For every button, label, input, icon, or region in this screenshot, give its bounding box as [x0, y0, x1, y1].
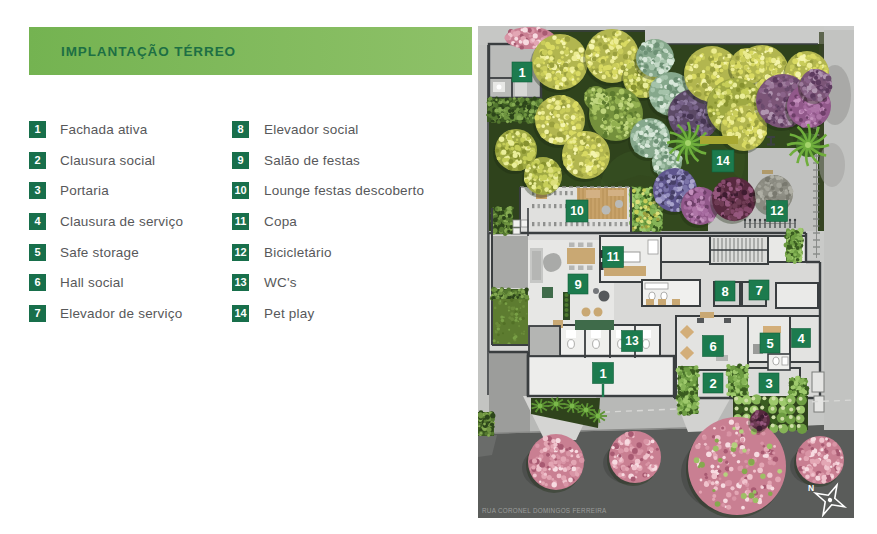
svg-text:N: N: [808, 483, 814, 493]
svg-text:1: 1: [518, 65, 525, 80]
svg-text:7: 7: [755, 283, 762, 298]
svg-text:1: 1: [599, 366, 606, 381]
svg-text:5: 5: [766, 336, 773, 351]
svg-text:6: 6: [709, 339, 716, 354]
svg-text:RUA CORONEL DOMINGOS FERREIRA: RUA CORONEL DOMINGOS FERREIRA: [482, 507, 607, 514]
svg-text:11: 11: [607, 250, 620, 264]
svg-text:8: 8: [721, 284, 728, 299]
svg-text:4: 4: [797, 331, 805, 346]
svg-text:14: 14: [716, 154, 730, 168]
svg-text:12: 12: [770, 204, 784, 218]
svg-text:3: 3: [765, 376, 772, 391]
svg-text:2: 2: [709, 376, 716, 391]
svg-text:13: 13: [625, 334, 639, 348]
svg-text:10: 10: [570, 204, 584, 218]
svg-text:9: 9: [574, 277, 581, 292]
